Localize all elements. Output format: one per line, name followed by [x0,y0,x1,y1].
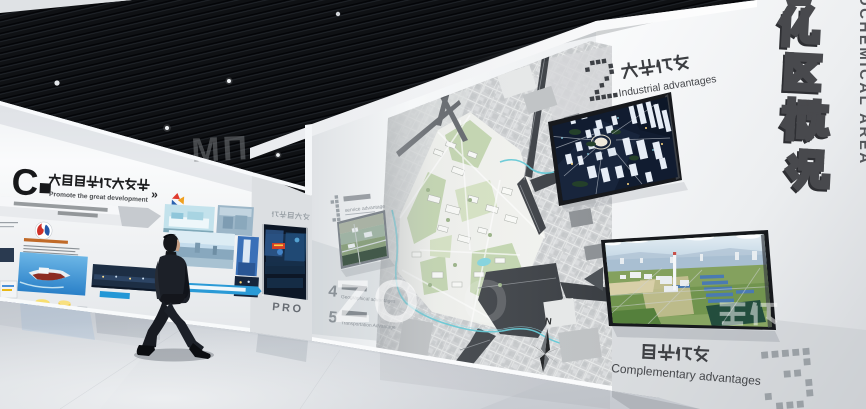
svg-text:OCHEMICAL AREA: OCHEMICAL AREA [856,0,866,166]
svg-text:ZO: ZO [334,268,421,335]
svg-text:C: C [11,161,40,203]
svg-text:O: O [462,268,509,335]
svg-text:»: » [151,187,159,201]
